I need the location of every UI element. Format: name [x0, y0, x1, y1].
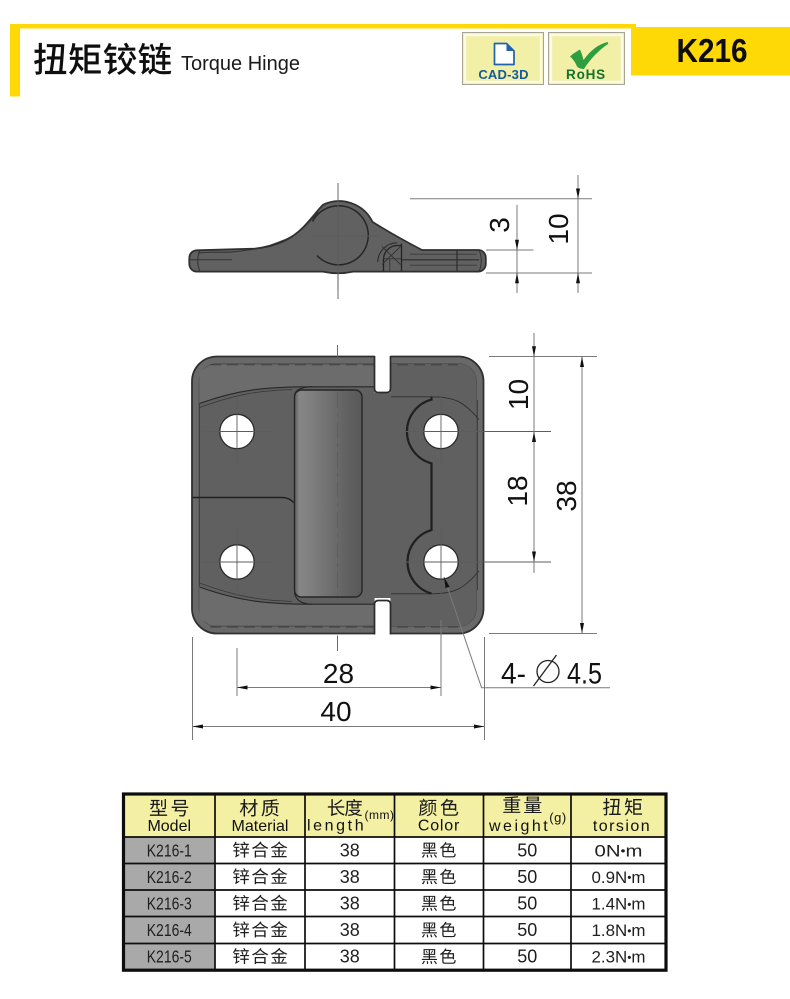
svg-text:Torque Hinge: Torque Hinge: [181, 53, 300, 75]
svg-text:50: 50: [517, 840, 537, 860]
svg-text:18: 18: [502, 475, 533, 506]
svg-text:K216-3: K216-3: [147, 894, 192, 914]
svg-text:length: length: [307, 817, 366, 834]
svg-text:40: 40: [320, 696, 351, 727]
svg-text:38: 38: [551, 480, 582, 511]
svg-text:50: 50: [517, 867, 537, 887]
svg-text:38: 38: [340, 840, 360, 860]
svg-text:Color: Color: [418, 817, 460, 834]
svg-text:38: 38: [340, 920, 360, 940]
svg-text:K216-2: K216-2: [147, 867, 192, 887]
svg-text:CAD-3D: CAD-3D: [478, 67, 528, 82]
svg-text:RoHS: RoHS: [566, 67, 606, 82]
svg-text:K216-5: K216-5: [147, 947, 192, 967]
svg-text:3: 3: [484, 217, 515, 233]
svg-text:10: 10: [543, 213, 574, 244]
svg-text:38: 38: [340, 947, 360, 967]
svg-text:2.3N•m: 2.3N•m: [592, 948, 646, 967]
svg-text:50: 50: [517, 894, 537, 914]
svg-text:Material: Material: [232, 818, 289, 835]
svg-text:(mm): (mm): [365, 808, 395, 822]
svg-text:1.8N•m: 1.8N•m: [592, 921, 646, 940]
svg-text:1.4N•m: 1.4N•m: [592, 895, 646, 914]
svg-text:4-: 4-: [501, 658, 526, 691]
svg-text:0N•m: 0N•m: [595, 841, 643, 860]
svg-text:28: 28: [323, 658, 354, 689]
svg-text:(g): (g): [549, 810, 566, 825]
svg-text:K216-4: K216-4: [147, 920, 192, 940]
svg-text:Model: Model: [147, 818, 191, 835]
svg-text:50: 50: [517, 920, 537, 940]
svg-text:4.5: 4.5: [567, 658, 602, 691]
svg-text:38: 38: [340, 867, 360, 887]
svg-text:10: 10: [503, 379, 534, 410]
svg-text:weight: weight: [488, 818, 550, 835]
svg-text:50: 50: [517, 947, 537, 967]
svg-text:K216: K216: [677, 32, 748, 69]
svg-text:0.9N•m: 0.9N•m: [592, 868, 646, 887]
svg-text:38: 38: [340, 894, 360, 914]
svg-text:K216-1: K216-1: [147, 840, 192, 860]
svg-text:torsion: torsion: [593, 818, 651, 835]
